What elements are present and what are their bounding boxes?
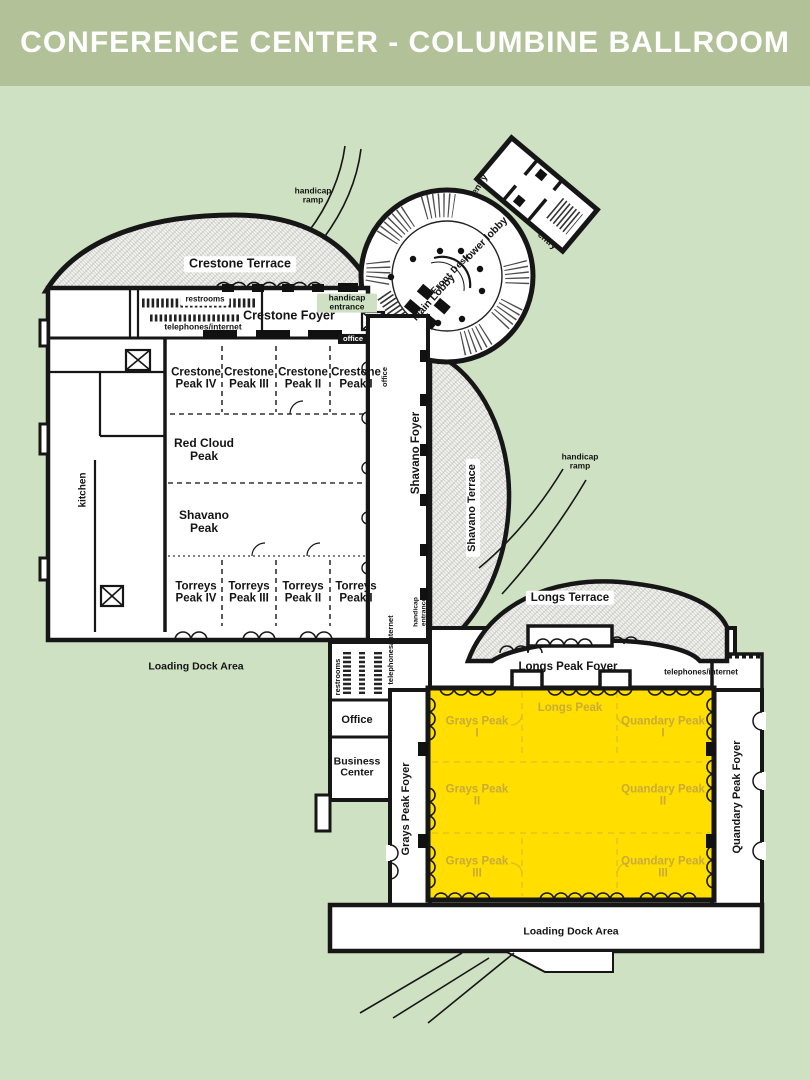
label-handicap-ramp-e: handicap ramp — [551, 453, 609, 472]
label-office-n: office — [338, 334, 368, 344]
floor-plan: Crestone Terrace handicap ramp restrooms… — [0, 0, 810, 1080]
header-band: CONFERENCE CENTER - COLUMBINE BALLROOM — [0, 0, 810, 86]
foyer-desk-shape — [528, 626, 612, 646]
label-telephones-s: telephones/internet — [387, 615, 395, 684]
floorplan-svg — [0, 0, 810, 1080]
label-handicap-ramp-nw: handicap ramp — [284, 187, 342, 206]
page: Crestone Terrace handicap ramp restrooms… — [0, 0, 810, 1080]
label-crestone-peak-i: Crestone Peak I — [325, 367, 387, 392]
label-restrooms-s: restrooms — [334, 659, 342, 696]
label-crestone-terrace: Crestone Terrace — [184, 256, 296, 272]
label-quandary-peak-ii: Quandary Peak II — [621, 784, 705, 809]
label-handicap-entrance-m: handicap entrance — [412, 588, 427, 636]
label-shavano-foyer: Shavano Foyer — [410, 412, 422, 494]
label-torreys-peak-i: Torreys Peak I — [326, 581, 386, 606]
label-telephones-nw: telephones/internet — [164, 322, 241, 331]
label-shavano-peak: Shavano Peak — [172, 509, 236, 535]
label-torreys-peak-iii: Torreys Peak III — [219, 581, 279, 606]
driveway-lines — [360, 953, 514, 1023]
label-business-center: Business Center — [325, 757, 389, 780]
plan-geometry — [40, 138, 766, 1023]
label-kitchen: kitchen — [79, 472, 90, 507]
label-longs-peak-foyer: Longs Peak Foyer — [518, 661, 617, 673]
label-office-s: Office — [341, 715, 372, 727]
label-shavano-terrace: Shavano Terrace — [466, 459, 480, 557]
label-torreys-peak-iv: Torreys Peak IV — [166, 581, 226, 606]
label-grays-peak-i: Grays Peak I — [445, 716, 509, 741]
label-grays-peak-iii: Grays Peak III — [445, 856, 509, 881]
label-red-cloud-peak: Red Cloud Peak — [168, 437, 240, 463]
label-loading-dock-s: Loading Dock Area — [523, 926, 618, 937]
label-grays-peak-ii: Grays Peak II — [445, 784, 509, 809]
label-torreys-peak-ii: Torreys Peak II — [273, 581, 333, 606]
label-quandary-peak-foyer: Quandary Peak Foyer — [732, 740, 744, 853]
label-restrooms-nw: restrooms — [180, 295, 229, 306]
label-handicap-entrance-n: handicap entrance — [317, 294, 377, 313]
label-loading-dock-w: Loading Dock Area — [148, 661, 243, 672]
label-longs-terrace: Longs Terrace — [526, 591, 614, 605]
label-longs-peak: Longs Peak — [538, 702, 603, 714]
label-quandary-peak-i: Quandary Peak I — [621, 716, 705, 741]
label-telephones-e: telephones/internet — [664, 669, 738, 678]
label-quandary-peak-iii: Quandary Peak III — [621, 856, 705, 881]
label-grays-peak-foyer: Grays Peak Foyer — [401, 763, 413, 856]
page-title: CONFERENCE CENTER - COLUMBINE BALLROOM — [0, 0, 810, 86]
